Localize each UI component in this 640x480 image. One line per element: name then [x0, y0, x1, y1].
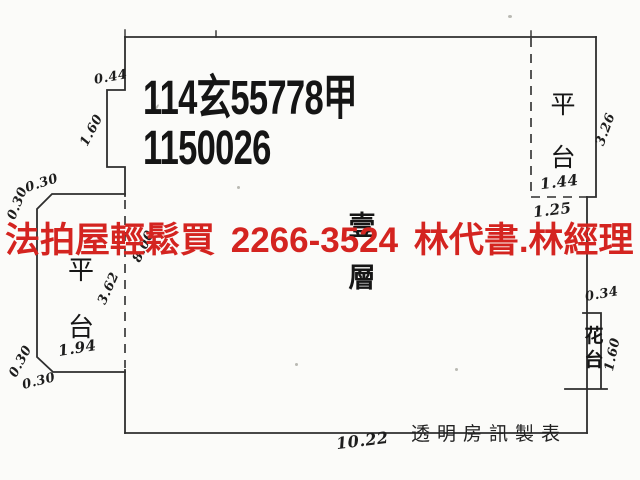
right-platform-label: 平台: [548, 78, 578, 184]
agency-watermark: 法拍屋輕鬆買 2266-3524 林代書.林經理: [5, 212, 634, 263]
right-platform-edge: [587, 37, 596, 197]
wall-left-notch: [107, 37, 125, 196]
parcel-id: 114玄55778甲 1150026: [143, 74, 357, 174]
parcel-id-line1: 114玄55778甲: [143, 74, 357, 124]
tick-marks: [125, 30, 531, 37]
credit-line: 透明房訊製表: [411, 419, 567, 446]
flower-bed-label: 花台: [583, 324, 605, 372]
parcel-id-line2: 1150026: [143, 124, 357, 174]
floorplan-scan: 114玄55778甲 1150026 法拍屋輕鬆買 2266-3524 林代書.…: [0, 0, 640, 480]
